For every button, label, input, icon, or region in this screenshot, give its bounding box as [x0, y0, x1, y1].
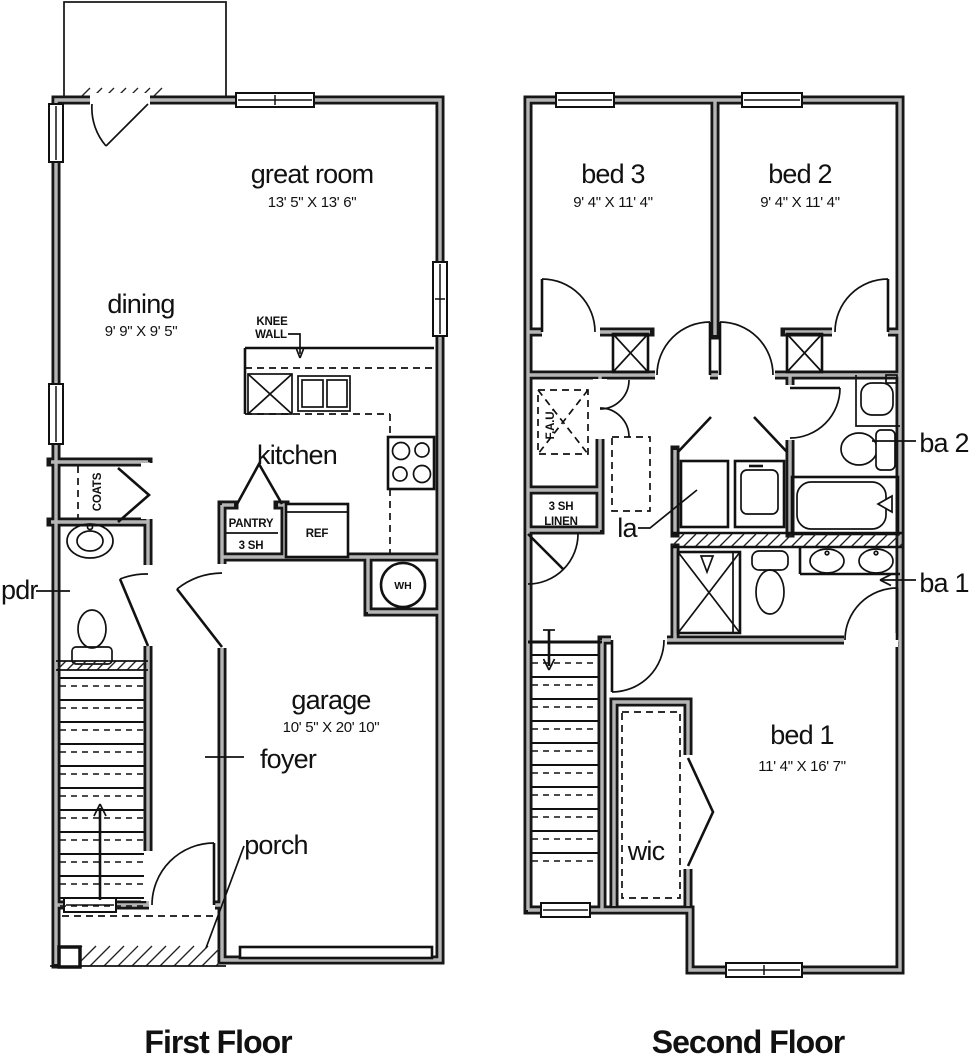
patio-door-icon: [92, 104, 148, 146]
garage-label: garage: [291, 685, 370, 715]
bed1-dims: 11' 4" X 16' 7": [758, 758, 846, 775]
ba1-door-icon: [845, 588, 897, 640]
hall-dashed-box: [612, 437, 650, 511]
wic-shelf-line: [622, 712, 680, 898]
kitchen-sink-icon: [298, 376, 350, 411]
bed3-closet-box: [613, 334, 648, 372]
second-floor-labels: bed 3 9' 4" X 11' 4" bed 2 9' 4" X 11' 4…: [544, 159, 968, 866]
knee-wall-label-1: KNEE: [256, 316, 288, 328]
linen-label-2: LINEN: [544, 516, 578, 528]
bathtub-icon: [792, 477, 898, 534]
first-floor-labels: great room 13' 5" X 13' 6" dining 9' 9" …: [1, 159, 412, 860]
stairs-down-arrow-icon: [543, 630, 555, 670]
water-heater-label: WH: [394, 580, 412, 592]
laundry-doors-icon: [678, 417, 787, 452]
ba2-sink-icon: [856, 375, 900, 426]
window-icon: [433, 262, 447, 336]
fau-label: F.A.U.: [545, 409, 557, 440]
first-floor-title: First Floor: [144, 1024, 292, 1060]
window-icon: [556, 93, 614, 107]
window-icon: [49, 104, 63, 162]
first-floor-door-openings: [90, 93, 229, 912]
foyer-label: foyer: [260, 744, 317, 774]
patio-outline: [64, 2, 226, 98]
stove-icon: [388, 437, 434, 489]
dryer-icon: [735, 461, 784, 527]
wic-label: wic: [627, 836, 665, 866]
great-room-label: great room: [251, 159, 374, 189]
bed3-door-icon: [657, 322, 710, 375]
porch-hatch: [62, 946, 220, 966]
window-icon: [541, 903, 590, 917]
coats-label: COATS: [92, 472, 104, 511]
linen-label-1: 3 SH: [549, 501, 574, 513]
stairs-first-floor: [60, 678, 144, 906]
linen-door-icon: [528, 534, 578, 584]
floor-plan-drawing: great room 13' 5" X 13' 6" dining 9' 9" …: [0, 0, 973, 1064]
bed1-door-icon: [612, 640, 664, 692]
first-floor-plan: great room 13' 5" X 13' 6" dining 9' 9" …: [1, 2, 447, 967]
window-icon: [49, 384, 63, 444]
bed2-closet-box: [787, 334, 822, 372]
window-icon: [236, 93, 314, 107]
ba2-toilet-icon: [841, 430, 895, 470]
first-floor-windows: [49, 93, 447, 912]
bed3-dims: 9' 4" X 11' 4": [573, 194, 652, 211]
pdr-toilet-icon: [72, 610, 112, 664]
kitchen-label: kitchen: [257, 440, 337, 470]
bed3-closet-door-icon: [542, 279, 595, 332]
bed2-label: bed 2: [768, 159, 832, 189]
pdr-label: pdr: [1, 575, 38, 605]
dining-label: dining: [107, 289, 174, 319]
window-icon: [742, 93, 802, 107]
pdr-sink-icon: [67, 524, 113, 558]
garage-door-icon: [240, 947, 432, 958]
shower-icon: [678, 552, 740, 633]
pantry-shelves-label: 3 SH: [239, 540, 264, 552]
great-room-dims: 13' 5" X 13' 6": [268, 194, 357, 211]
ba1-toilet-icon: [752, 551, 788, 614]
ba2-label: ba 2: [919, 428, 968, 458]
ref-label: REF: [306, 528, 329, 540]
window-icon: [64, 898, 116, 912]
dining-dims: 9' 9" X 9' 5": [105, 323, 178, 340]
front-door-icon: [152, 843, 214, 905]
garage-dims: 10' 5" X 20' 10": [283, 719, 380, 736]
pantry-door-icon: [236, 464, 282, 506]
second-floor-title: Second Floor: [652, 1024, 845, 1060]
ba2-door-icon: [790, 388, 840, 438]
stair-hatch: [57, 661, 145, 670]
stairs-second-floor: [532, 655, 598, 861]
bed3-label: bed 3: [581, 159, 645, 189]
bed2-door-icon: [720, 322, 773, 375]
porch-label: porch: [244, 830, 308, 860]
second-floor-plan: bed 3 9' 4" X 11' 4" bed 2 9' 4" X 11' 4…: [528, 93, 969, 977]
window-icon: [726, 963, 802, 977]
washer-icon: [681, 461, 728, 527]
bed2-closet-door-icon: [835, 279, 888, 332]
bed1-label: bed 1: [770, 720, 834, 750]
porch-post-icon: [59, 947, 80, 967]
pantry-label: PANTRY: [229, 518, 274, 530]
double-vanity-icon: [800, 548, 900, 574]
floor-plan-page: great room 13' 5" X 13' 6" dining 9' 9" …: [0, 0, 973, 1064]
laundry-label: la: [617, 513, 638, 543]
ba1-label: ba 1: [919, 568, 968, 598]
bed2-dims: 9' 4" X 11' 4": [760, 194, 839, 211]
knee-wall-label-2: WALL: [255, 329, 287, 341]
